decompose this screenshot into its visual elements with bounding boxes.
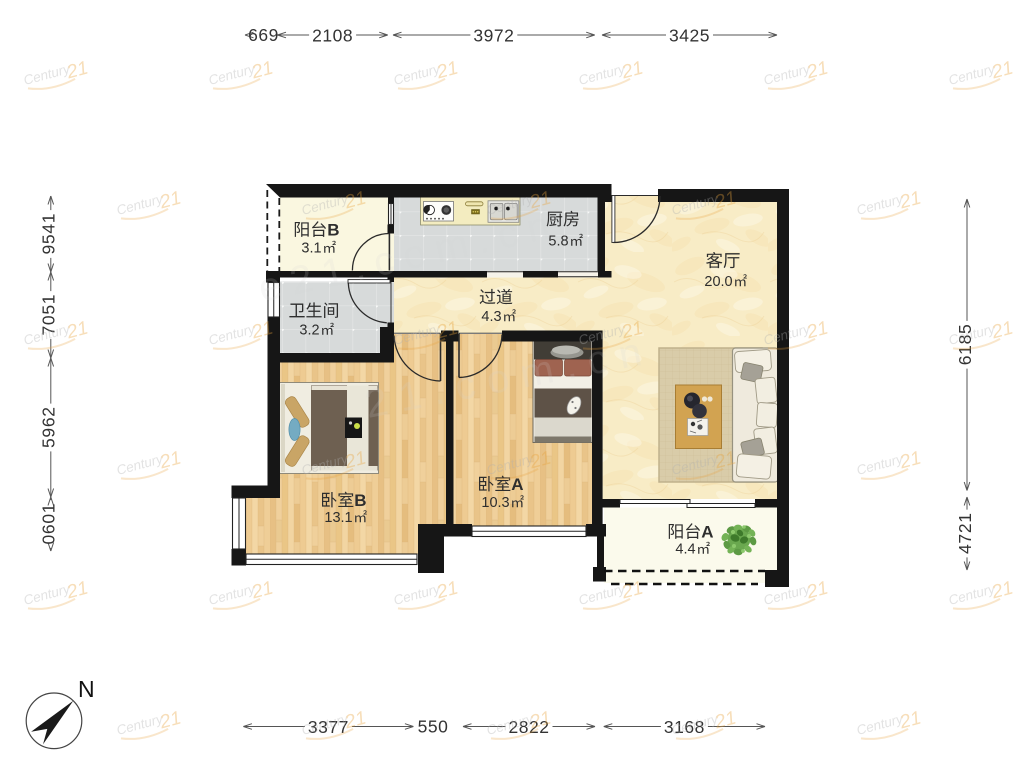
svg-text:6: 6 <box>39 524 59 534</box>
svg-text:5: 5 <box>39 234 59 244</box>
svg-text:6: 6 <box>955 356 975 366</box>
svg-text:20.0: 20.0 <box>704 274 732 290</box>
svg-text:9: 9 <box>39 428 59 438</box>
svg-text:3972: 3972 <box>473 25 514 45</box>
svg-text:4: 4 <box>955 544 975 554</box>
svg-text:5: 5 <box>39 438 59 448</box>
svg-text:B: B <box>354 491 366 510</box>
svg-text:2: 2 <box>39 407 59 417</box>
svg-text:1: 1 <box>955 345 975 355</box>
svg-text:1: 1 <box>39 504 59 514</box>
svg-text:4: 4 <box>39 224 59 234</box>
svg-text:10.3: 10.3 <box>481 495 509 511</box>
svg-text:550: 550 <box>418 717 449 737</box>
svg-text:5: 5 <box>39 305 59 315</box>
svg-text:3425: 3425 <box>669 25 710 45</box>
svg-text:4.3: 4.3 <box>481 309 501 325</box>
svg-text:2: 2 <box>955 523 975 533</box>
svg-text:3.2: 3.2 <box>299 323 319 339</box>
svg-text:N: N <box>78 676 95 702</box>
svg-text:669: 669 <box>248 25 279 45</box>
svg-text:1: 1 <box>39 214 59 224</box>
svg-text:6: 6 <box>39 417 59 427</box>
svg-text:1: 1 <box>39 295 59 305</box>
svg-text:9: 9 <box>39 245 59 255</box>
svg-text:2108: 2108 <box>312 25 353 45</box>
svg-text:0: 0 <box>39 514 59 524</box>
svg-text:0: 0 <box>39 534 59 544</box>
svg-text:13.1: 13.1 <box>324 510 352 526</box>
svg-text:7: 7 <box>955 534 975 544</box>
svg-text:B: B <box>327 221 339 240</box>
svg-text:4.4: 4.4 <box>675 542 695 558</box>
svg-text:1: 1 <box>955 513 975 523</box>
svg-text:A: A <box>701 523 713 542</box>
